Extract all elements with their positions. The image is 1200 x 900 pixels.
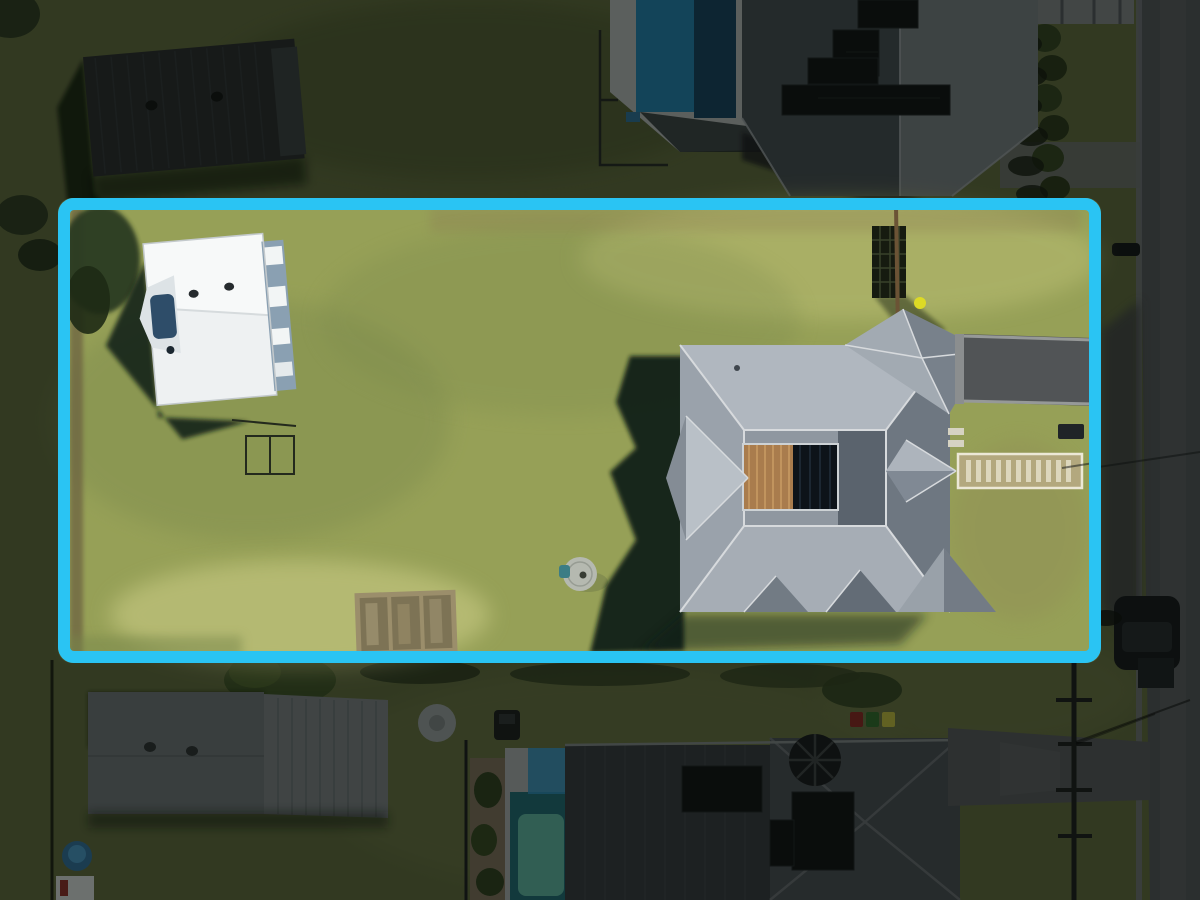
bed-weathering <box>397 604 410 644</box>
aerial-scene <box>0 0 1200 900</box>
driveway <box>955 334 1094 406</box>
trampoline <box>789 734 841 786</box>
entry-step <box>948 440 964 447</box>
pad-valve <box>559 565 570 578</box>
pool-toy <box>626 112 640 122</box>
roof-vent <box>186 746 198 756</box>
neighbor-pool-bottom <box>466 740 579 900</box>
wheelie-bins <box>850 712 895 727</box>
shed-roof-left <box>88 692 264 814</box>
round-pad-center <box>429 715 445 731</box>
letterbox <box>1058 424 1084 439</box>
kiddie-pool-water <box>68 845 86 863</box>
roof-vent <box>734 365 740 371</box>
aerial-photo-stage <box>0 0 1200 900</box>
dirt-strip-top <box>430 206 1080 232</box>
garden-beds <box>357 592 455 653</box>
car-on-road-small <box>1112 243 1140 256</box>
highlighted-lot <box>50 196 1101 670</box>
pool-water-shaded <box>694 0 736 118</box>
paver-path <box>958 454 1082 488</box>
corner-tree-shadow <box>66 266 110 334</box>
garden-plant <box>476 868 504 896</box>
bed-weathering <box>429 599 443 643</box>
courtyard-deck <box>743 444 793 510</box>
mower-top <box>499 714 515 724</box>
pool-water-bright <box>518 814 564 896</box>
bed-weathering <box>365 603 378 645</box>
roof-inner-shaded <box>838 430 886 526</box>
road-worn-band <box>1160 0 1186 900</box>
shed-south-shadow <box>88 812 388 828</box>
courtyard <box>743 444 838 510</box>
verge-tree <box>18 239 62 271</box>
wall-window <box>274 361 293 377</box>
wall-window <box>271 328 290 346</box>
trailer-marking <box>60 880 68 896</box>
car-tray <box>1138 658 1174 688</box>
wall-window <box>264 246 284 266</box>
shed-roof-right <box>264 694 388 818</box>
neighbor-shed-bottom-left <box>88 692 388 828</box>
roof-vent <box>144 742 156 752</box>
yellow-ball <box>914 297 926 309</box>
main-house <box>666 309 996 612</box>
entry-step <box>948 428 964 435</box>
wall-window <box>267 286 287 307</box>
driveway-apron <box>955 334 964 404</box>
bottom-edge-shade <box>62 636 242 658</box>
garden-plant <box>474 772 502 808</box>
garden-plant <box>471 824 497 856</box>
